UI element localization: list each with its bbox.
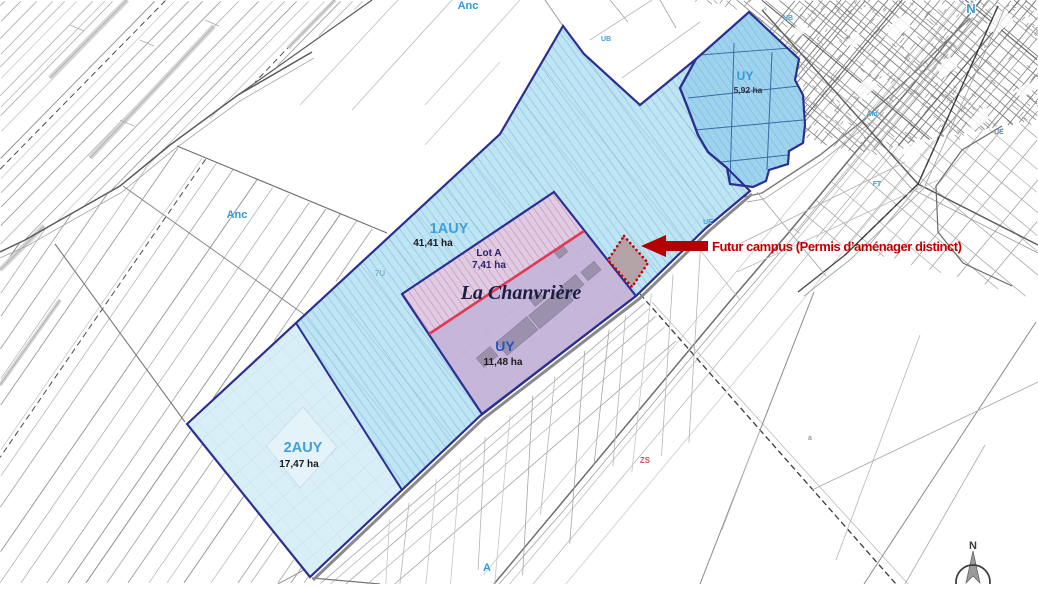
svg-text:La Chanvrière: La Chanvrière [460, 282, 582, 304]
svg-text:5,92 ha: 5,92 ha [734, 85, 763, 95]
svg-text:N: N [966, 1, 975, 16]
svg-text:1AUY: 1AUY [430, 221, 469, 237]
svg-text:A: A [483, 562, 491, 574]
svg-text:Futur campus (Permis d’aménage: Futur campus (Permis d’aménager distinct… [712, 239, 962, 254]
svg-text:FT: FT [873, 181, 882, 188]
svg-text:UY: UY [495, 338, 515, 354]
svg-text:N: N [969, 540, 977, 552]
svg-text:UE: UE [994, 129, 1004, 136]
svg-text:2AUY: 2AUY [284, 440, 323, 456]
svg-text:Lot A: Lot A [476, 248, 501, 259]
svg-text:Am: Am [866, 111, 877, 118]
svg-text:17,47 ha: 17,47 ha [279, 459, 319, 470]
svg-text:UE: UE [703, 219, 713, 226]
svg-text:ZS: ZS [640, 456, 651, 465]
svg-text:7U: 7U [375, 269, 385, 278]
svg-text:Anc: Anc [458, 0, 479, 12]
svg-text:41,41 ha: 41,41 ha [413, 238, 453, 249]
svg-text:UB: UB [783, 15, 793, 22]
svg-text:UY: UY [737, 69, 754, 83]
svg-text:a: a [808, 435, 812, 442]
svg-text:Anc: Anc [227, 209, 248, 221]
svg-text:7,41 ha: 7,41 ha [472, 260, 506, 271]
svg-text:UB: UB [601, 36, 611, 43]
svg-text:11,48 ha: 11,48 ha [484, 357, 523, 368]
